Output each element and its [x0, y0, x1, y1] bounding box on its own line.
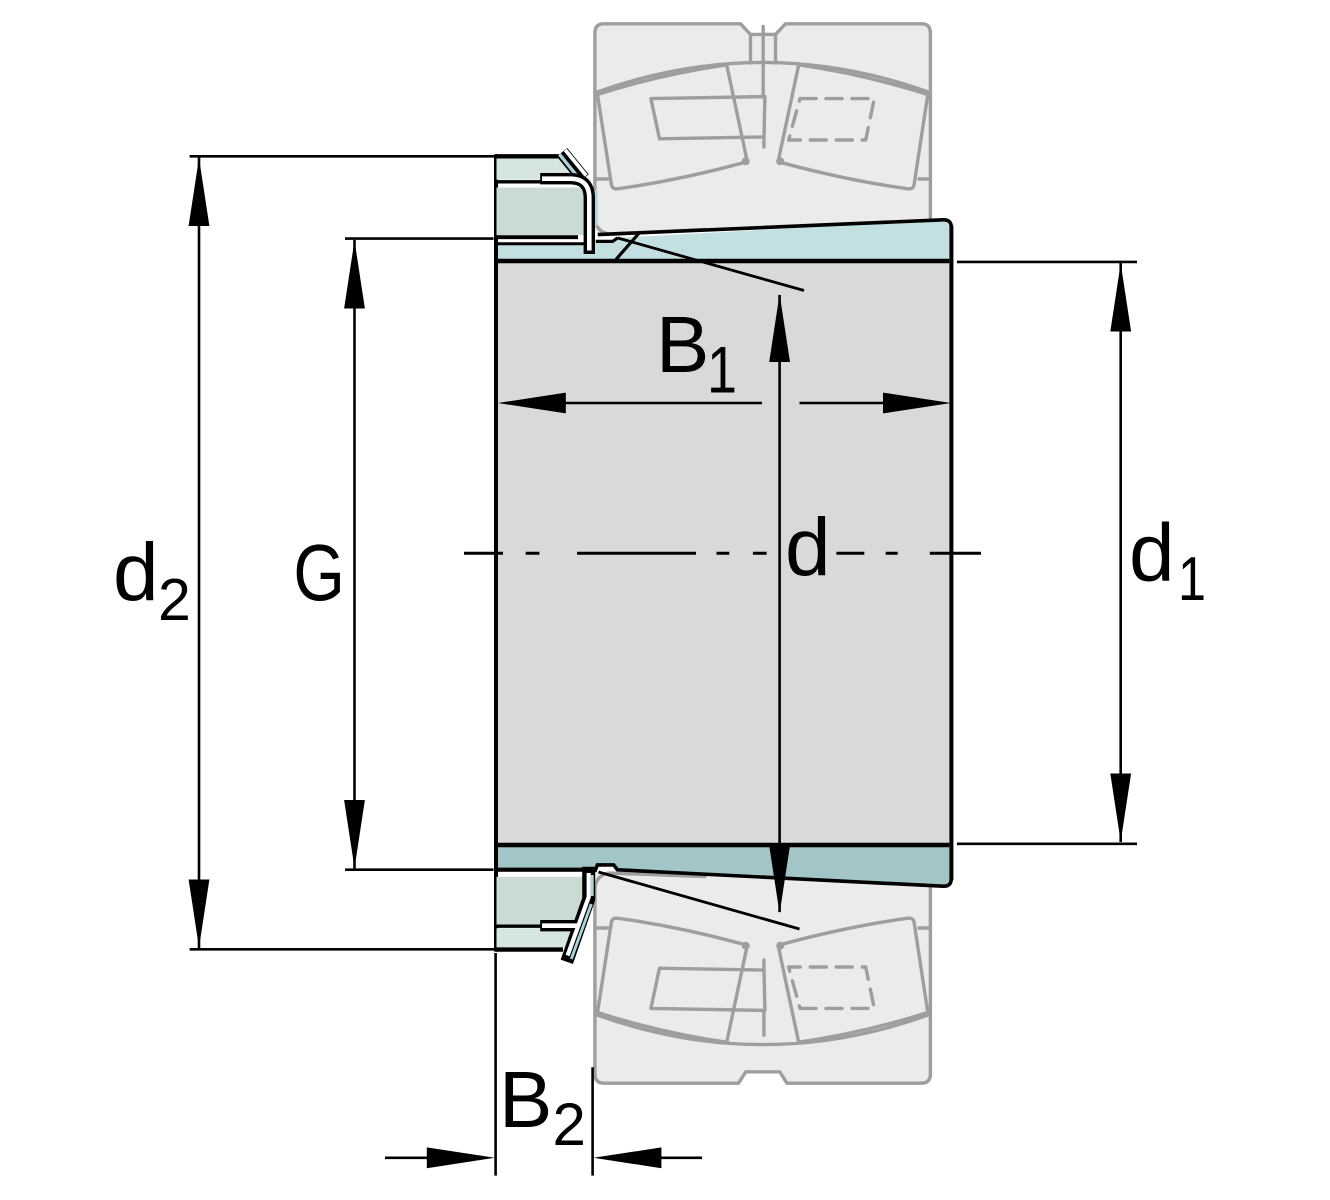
- svg-text:1: 1: [707, 333, 737, 407]
- svg-text:d: d: [113, 527, 159, 618]
- svg-text:d: d: [785, 502, 831, 593]
- svg-text:d: d: [1129, 508, 1175, 599]
- svg-text:G: G: [293, 528, 345, 617]
- svg-text:1: 1: [1178, 545, 1206, 614]
- svg-text:2: 2: [158, 567, 191, 633]
- svg-text:2: 2: [553, 1091, 586, 1158]
- svg-text:B: B: [499, 1055, 552, 1144]
- svg-text:B: B: [656, 300, 709, 389]
